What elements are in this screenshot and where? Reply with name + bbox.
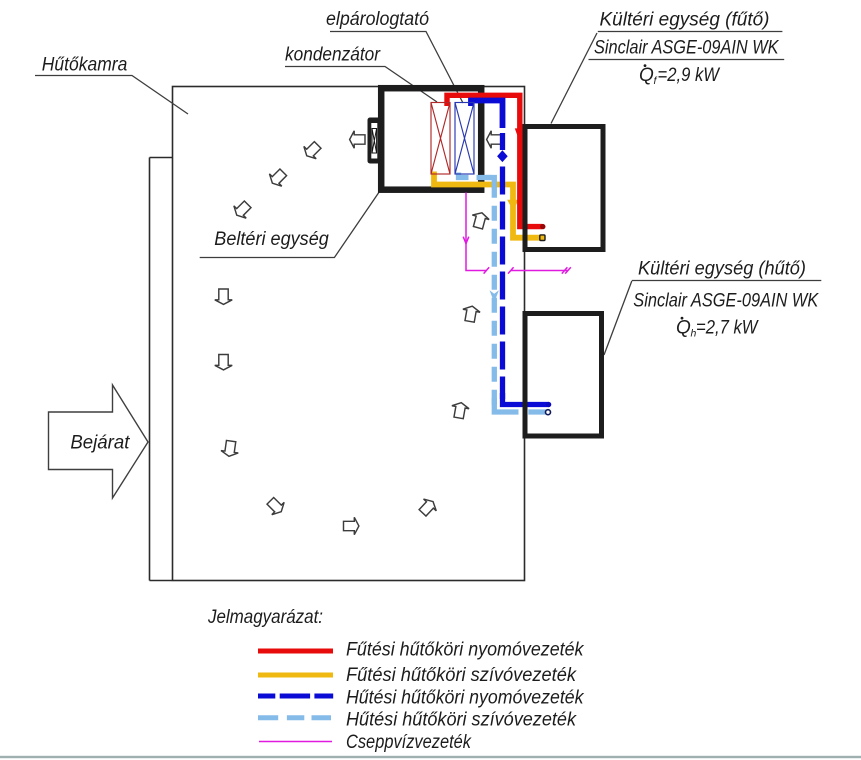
svg-text:Jelmagyarázat:: Jelmagyarázat: bbox=[207, 607, 323, 628]
svg-text:=2,9 kW: =2,9 kW bbox=[658, 65, 721, 86]
svg-text:Kültéri egység (hűtő): Kültéri egység (hűtő) bbox=[638, 259, 806, 280]
svg-text:Bejárat: Bejárat bbox=[70, 433, 130, 454]
svg-text:Fűtési hűtőköri nyomóvezeték: Fűtési hűtőköri nyomóvezeték bbox=[346, 640, 585, 661]
svg-text:Fűtési hűtőköri szívóvezeték: Fűtési hűtőköri szívóvezeték bbox=[346, 665, 577, 686]
svg-text:Sinclair ASGE-09AIN WK: Sinclair ASGE-09AIN WK bbox=[594, 38, 780, 59]
svg-text:Beltéri egység: Beltéri egység bbox=[214, 229, 329, 250]
svg-text:kondenzátor: kondenzátor bbox=[285, 45, 381, 66]
svg-text:Hűtési hűtőköri szívóvezeték: Hűtési hűtőköri szívóvezeték bbox=[346, 710, 577, 731]
svg-text:Sinclair ASGE-09AIN WK: Sinclair ASGE-09AIN WK bbox=[633, 291, 819, 312]
svg-text:=2,7 kW: =2,7 kW bbox=[696, 318, 759, 339]
svg-text:Q: Q bbox=[676, 318, 691, 339]
svg-text:Kültéri egység (fűtő): Kültéri egység (fűtő) bbox=[600, 10, 770, 31]
svg-text:Q: Q bbox=[639, 65, 654, 86]
svg-text:elpárologtató: elpárologtató bbox=[326, 9, 429, 30]
svg-text:Hűtési hűtőköri nyomóvezeték: Hűtési hűtőköri nyomóvezeték bbox=[346, 688, 585, 709]
svg-text:Hűtőkamra: Hűtőkamra bbox=[42, 55, 128, 76]
svg-text:Cseppvízvezeték: Cseppvízvezeték bbox=[346, 732, 472, 753]
